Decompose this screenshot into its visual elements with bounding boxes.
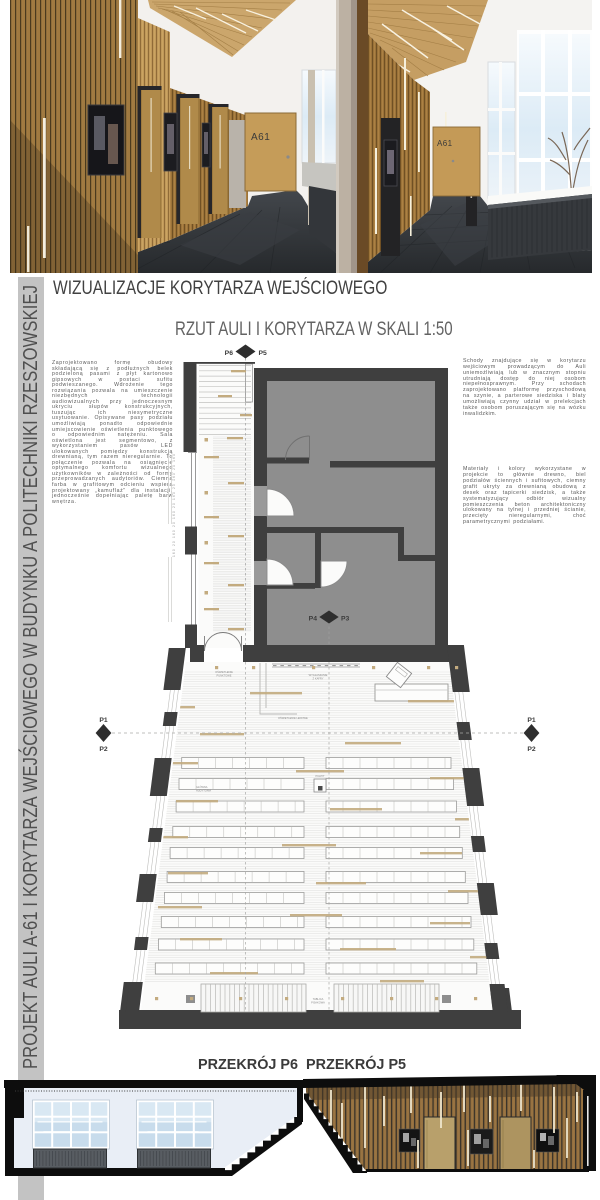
svg-text:PISAKOWA: PISAKOWA — [311, 1000, 325, 1004]
svg-text:160 20 160 20 160 20 160: 160 20 160 20 160 20 160 20 160 20 160 — [172, 453, 176, 557]
svg-text:A61: A61 — [437, 139, 453, 148]
svg-text:P2: P2 — [99, 746, 108, 753]
svg-text:P1: P1 — [99, 717, 108, 724]
svg-text:WYGŁASZANIE: WYGŁASZANIE — [309, 673, 328, 677]
svg-text:PUNKTOWE: PUNKTOWE — [217, 673, 232, 677]
svg-text:TABLICA: TABLICA — [313, 997, 324, 1001]
svg-text:AUDYTORIA: AUDYTORIA — [196, 788, 211, 792]
svg-text:PULPIT: PULPIT — [315, 774, 324, 778]
svg-text:P6: P6 — [225, 350, 234, 357]
svg-text:Z KAFRY: Z KAFRY — [313, 676, 324, 680]
svg-text:A61: A61 — [251, 132, 270, 143]
svg-text:P2: P2 — [527, 746, 536, 753]
svg-text:P5: P5 — [259, 350, 268, 357]
svg-text:P4: P4 — [309, 616, 318, 623]
svg-text:P1: P1 — [527, 717, 536, 724]
svg-text:P3: P3 — [341, 616, 350, 623]
